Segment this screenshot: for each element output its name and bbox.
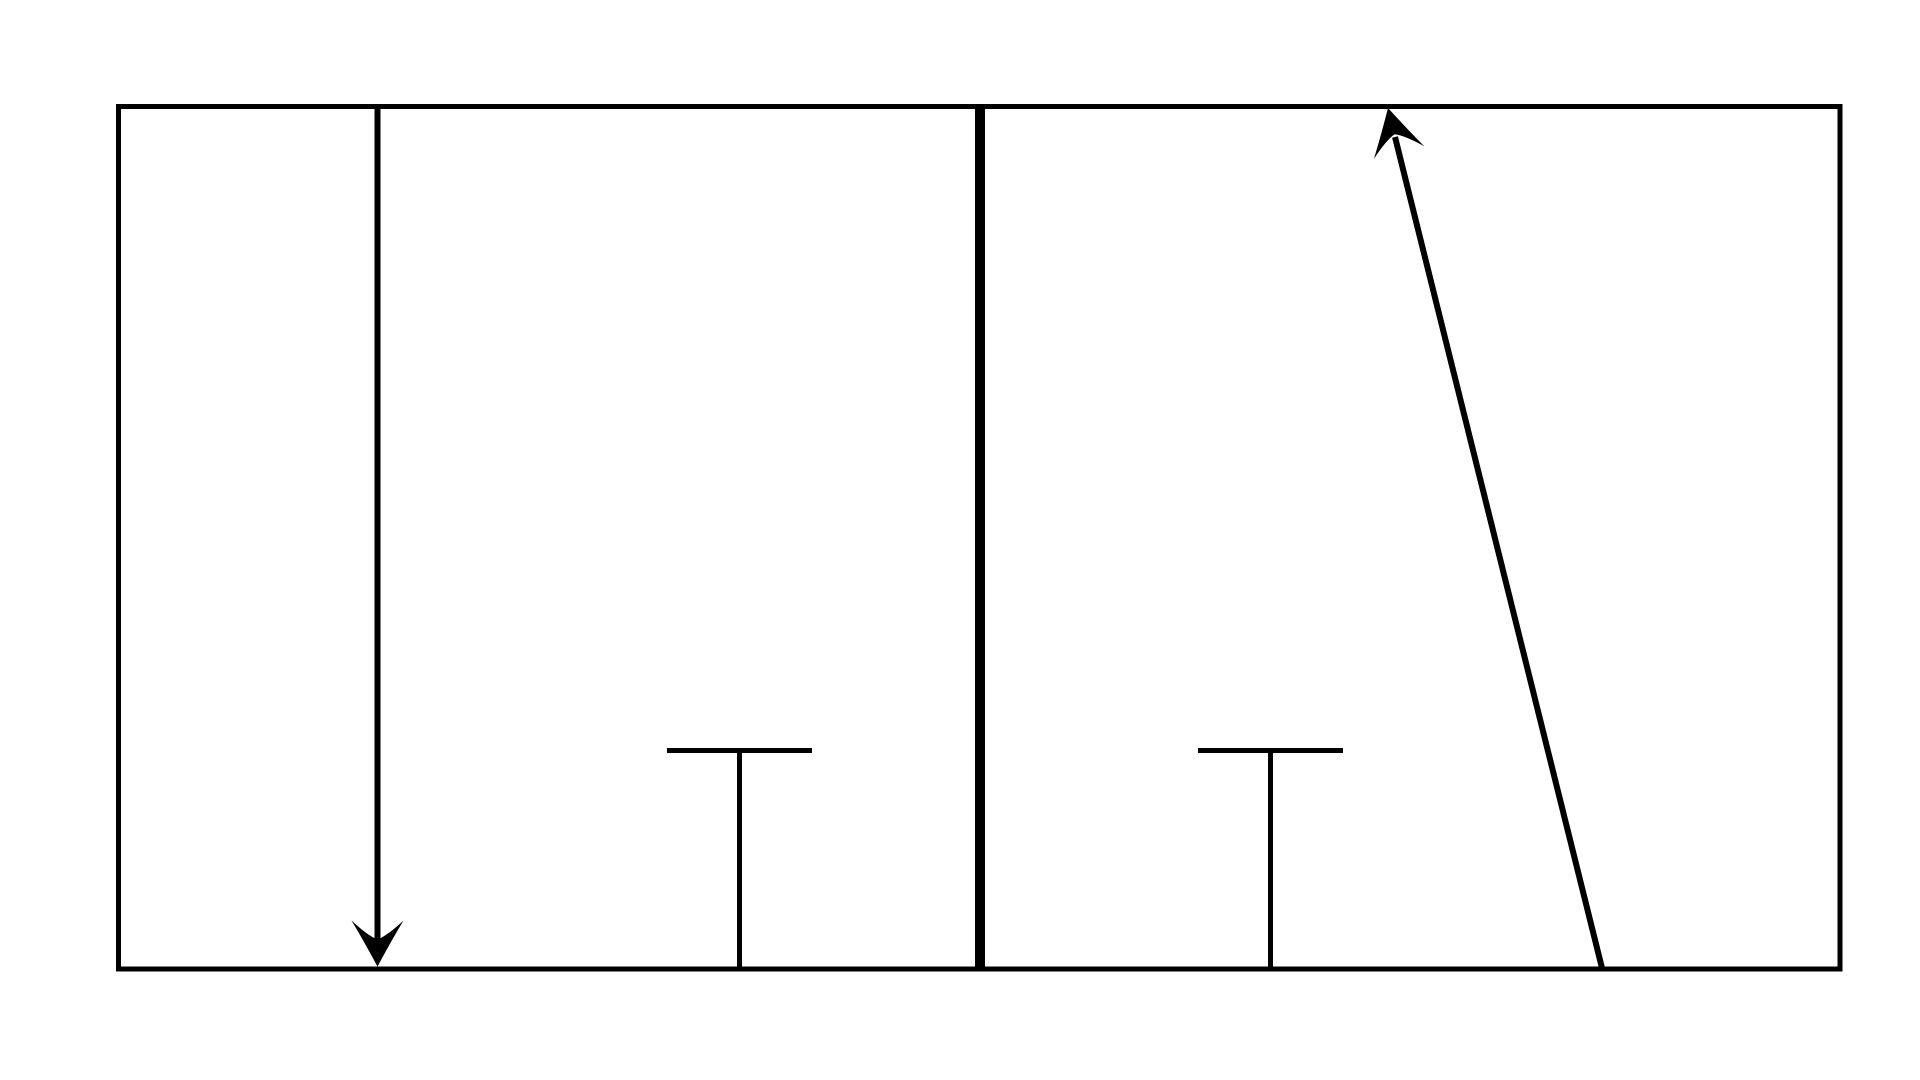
diagram-canvas <box>0 0 1920 1080</box>
up-arrow-head-icon <box>1363 102 1425 159</box>
diagonal-arrow-shaft <box>1395 137 1602 968</box>
diagram-stage <box>0 0 1920 1080</box>
right-tee <box>1198 751 1343 970</box>
diagonal-arrow <box>1363 102 1602 968</box>
left-tee <box>667 751 812 970</box>
down-arrow <box>352 107 404 967</box>
diagram-strokes <box>119 102 1841 972</box>
